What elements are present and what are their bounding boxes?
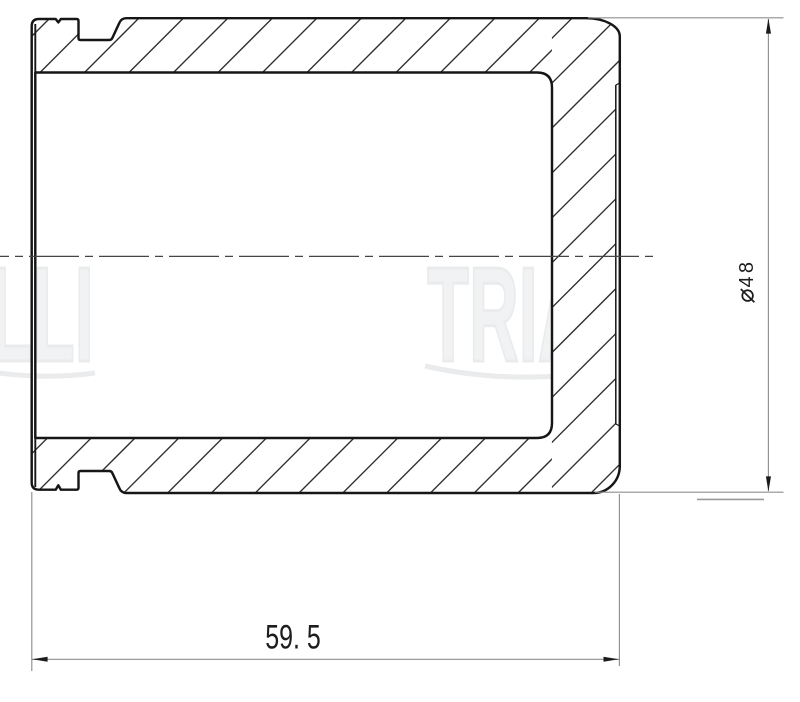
svg-text:TRIALLI: TRIALLI [0,239,94,390]
svg-text:59. 5: 59. 5 [265,619,321,657]
svg-text:48: 48 [736,259,758,288]
